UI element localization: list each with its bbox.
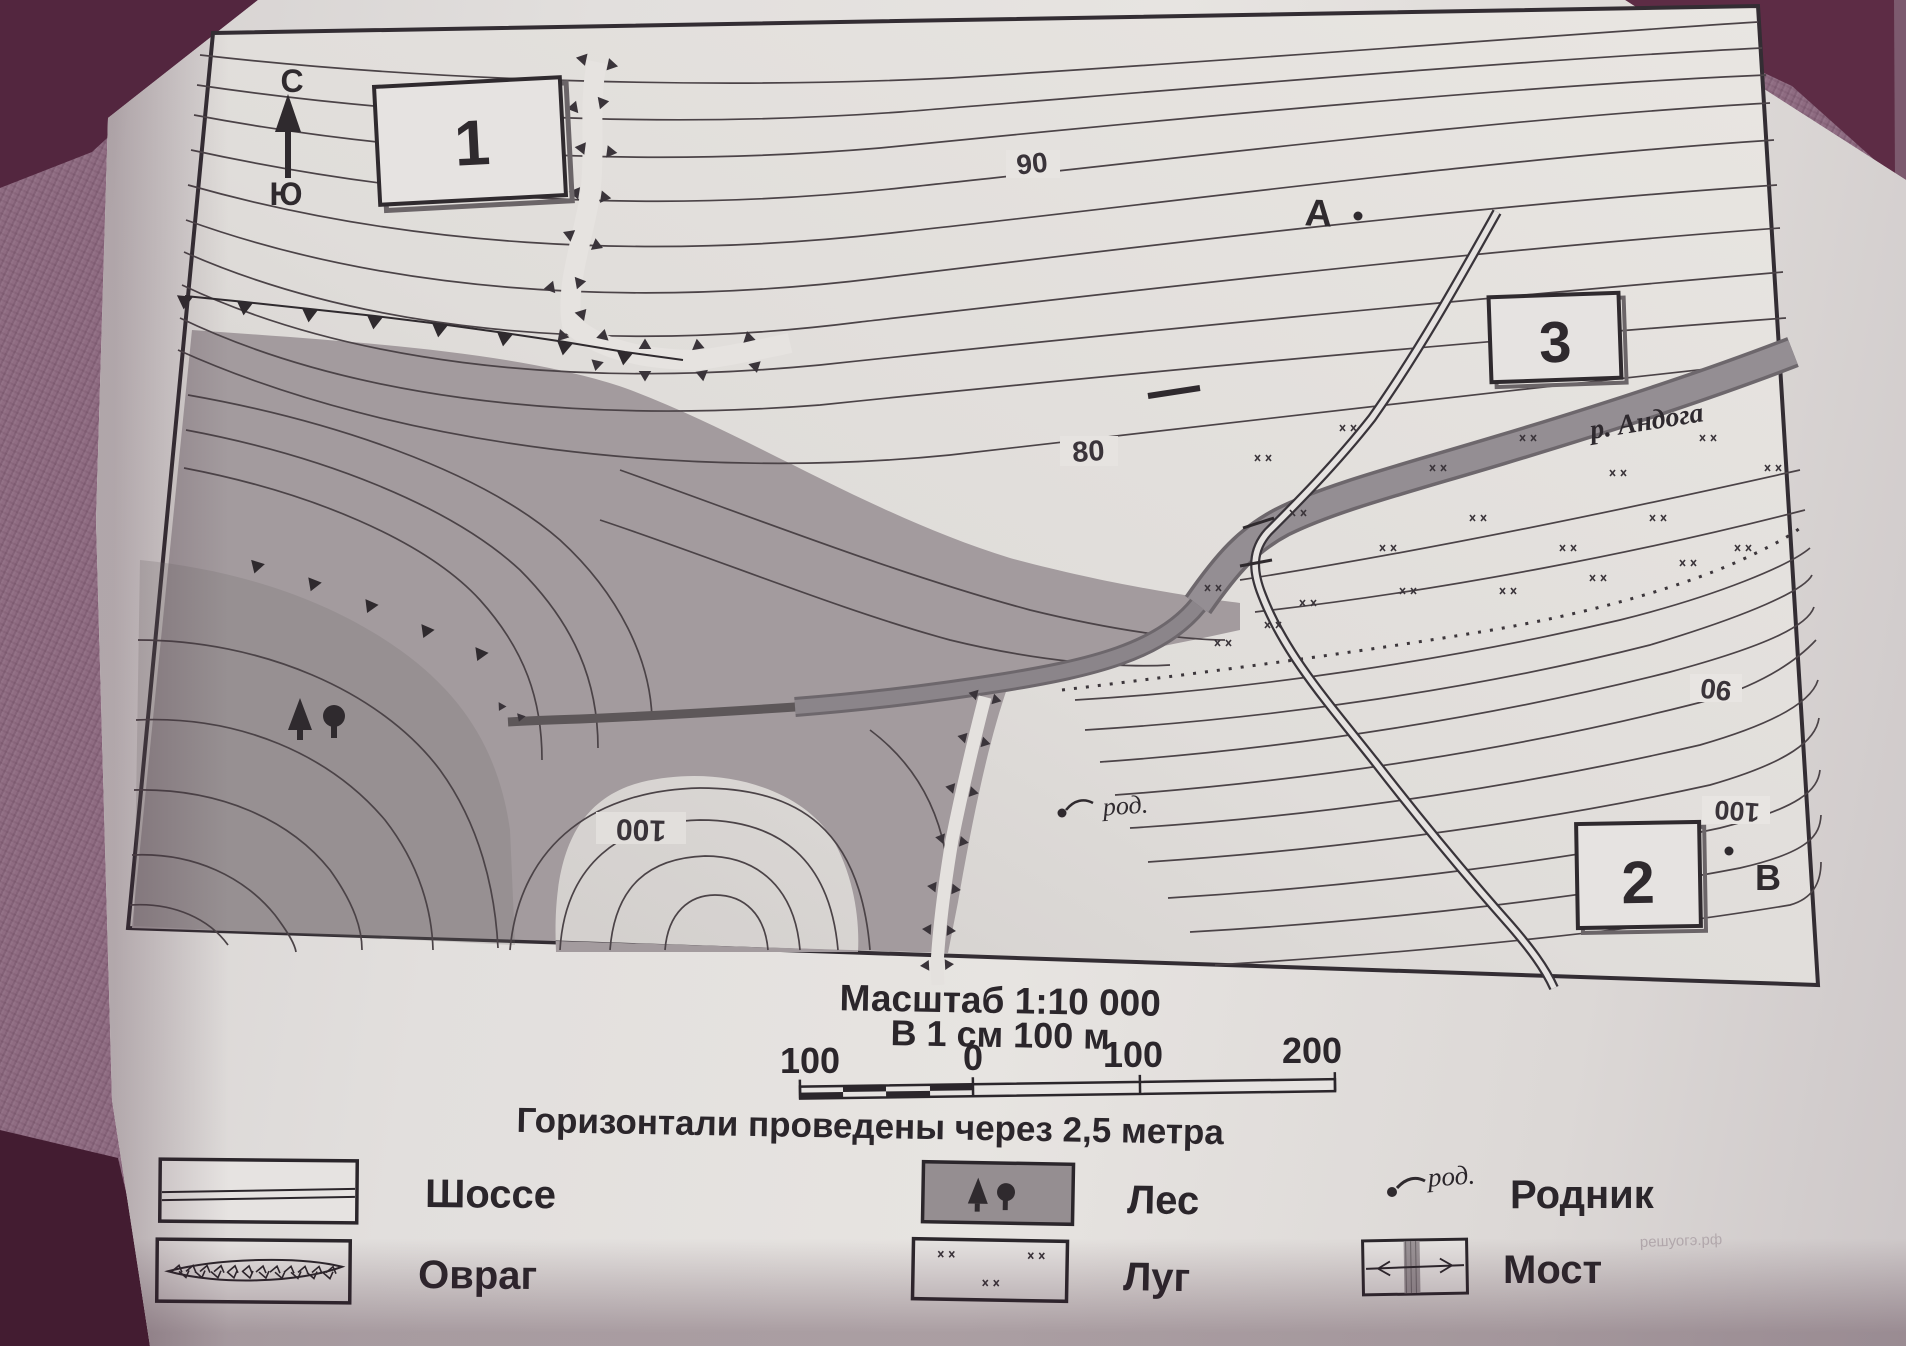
marker-square-3: 3	[1489, 293, 1627, 388]
marker-square-1: 1	[374, 77, 572, 211]
legend-label-meadow: Луг	[1123, 1255, 1191, 1300]
contour-label-80: 80	[1071, 435, 1105, 469]
scale-bar-label-0: 100	[780, 1040, 840, 1081]
square-2-number: 2	[1621, 849, 1656, 917]
point-a-dot	[1354, 212, 1363, 221]
marker-square-2: 2	[1576, 822, 1706, 933]
spring-label: род.	[1100, 789, 1149, 821]
compass-south-label: Ю	[270, 176, 303, 212]
topographic-map: С Ю 1 3 2 А В 90	[0, 0, 1906, 1346]
scale-bar	[800, 1072, 1335, 1098]
scale-bar-label-3: 200	[1282, 1030, 1342, 1071]
contour-label-90: 90	[1015, 147, 1049, 181]
scale-subtitle: В 1 см 100 м	[890, 1012, 1110, 1057]
legend-symbol-highway	[160, 1159, 358, 1223]
watermark: решуогэ.рф	[1640, 1231, 1723, 1251]
scale-bar-label-2: 100	[1103, 1034, 1163, 1075]
legend-label-bridge: Мост	[1503, 1248, 1602, 1292]
contour-label-90-right: 90	[1699, 672, 1734, 707]
legend-symbol-meadow	[912, 1239, 1067, 1302]
point-a-label: А	[1304, 192, 1334, 235]
legend-label-spring: Родник	[1510, 1173, 1655, 1217]
point-b-dot	[1725, 847, 1734, 856]
legend-label-ravine: Овраг	[418, 1253, 537, 1298]
legend-symbol-bridge	[1363, 1239, 1468, 1295]
contour-interval-note: Горизонтали проведены через 2,5 метра	[516, 1101, 1224, 1152]
contour-label-100-hill: 100	[615, 812, 666, 847]
legend-symbol-ravine	[157, 1239, 351, 1303]
legend: Шоссе Овраг Лес Луг	[157, 1159, 1655, 1303]
compass-north-label: С	[280, 63, 303, 99]
legend-symbol-spring: род.	[1387, 1159, 1476, 1197]
scale-block: Масштаб 1:10 000 В 1 см 100 м 100 0 100 …	[516, 977, 1342, 1152]
point-b-label: В	[1755, 857, 1781, 898]
square-1-number: 1	[452, 106, 491, 180]
legend-spring-symbol-text: род.	[1425, 1159, 1476, 1192]
contour-label-100-right: 100	[1713, 794, 1760, 827]
legend-label-forest: Лес	[1127, 1178, 1200, 1223]
photographed-page: С Ю 1 3 2 А В 90	[0, 0, 1906, 1346]
square-3-number: 3	[1538, 309, 1573, 375]
legend-label-highway: Шоссе	[425, 1172, 556, 1217]
scale-bar-label-1: 0	[963, 1037, 983, 1078]
legend-symbol-forest	[922, 1162, 1073, 1225]
